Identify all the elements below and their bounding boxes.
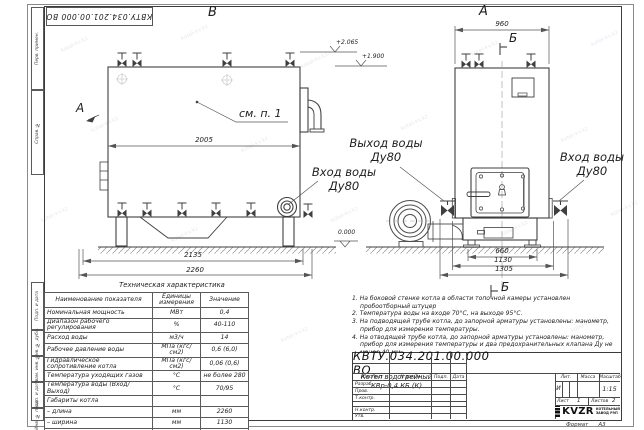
dim-2260: 2260: [165, 267, 225, 274]
spec-header-units: Единицы измерения: [153, 293, 201, 308]
col-header-podp: Подп.: [432, 375, 450, 380]
spec-row: Расход водым3/ч14: [45, 332, 249, 343]
spec-header-row: Наименование показателя Единицы измерени…: [45, 293, 249, 308]
dim-1305: 1305: [474, 266, 534, 273]
spec-header-name: Наименование показателя: [45, 293, 153, 308]
row-label-razrab: Разраб.: [355, 382, 373, 387]
view-label-a: А: [479, 5, 488, 18]
elevation-1900: +1.900: [362, 54, 384, 60]
row-label-nkontr: Н.контр.: [355, 408, 376, 413]
spec-units: м3/ч: [153, 332, 201, 343]
margin-label: Подп. и дата: [35, 291, 40, 321]
spec-value: 0,6 (6,0): [201, 343, 249, 357]
spec-header-value: Значение: [201, 293, 249, 308]
note-1: 1. На боковой стенке котла в области топ…: [352, 295, 620, 310]
spec-units: мм: [153, 418, 201, 429]
spec-units: мм: [153, 407, 201, 418]
spec-name: – ширина: [45, 418, 153, 429]
col-header-data: Дата: [451, 375, 466, 380]
spec-units: °С: [153, 371, 201, 382]
dim-1130: 1130: [473, 257, 533, 264]
note-3: 3. На подводящей трубе котла, до запорно…: [352, 318, 620, 333]
scale-value: 1:15: [599, 385, 620, 393]
dim-960: 960: [472, 21, 532, 28]
spec-value: 2260: [201, 407, 249, 418]
spec-value: не более 280: [201, 371, 249, 382]
elevation-0000: 0.000: [338, 230, 355, 236]
inlet-label-front-2: Ду80: [556, 166, 628, 178]
margin-box-perv-primen: Перв. примен.: [31, 7, 44, 90]
spec-name: Габариты котла: [45, 396, 153, 407]
format-note: ФорматА3: [566, 422, 616, 428]
mass-header: Масса: [577, 375, 599, 380]
spec-name: Диапазон рабочего регулирования: [45, 319, 153, 333]
col-header-n-dokum: N докум.: [391, 375, 431, 380]
spec-row: Номинальная мощностьМВт0,4: [45, 308, 249, 319]
logo-text: KVZR: [562, 406, 594, 417]
spec-row: Габариты котла: [45, 396, 249, 407]
margin-box-inv-podl: Инв. № подл.: [31, 408, 44, 421]
margin-label: Перв. примен.: [35, 32, 40, 65]
sheets-label: Листов: [591, 399, 608, 404]
spec-name: Гидравлическое сопротивление котла: [45, 357, 153, 371]
spec-row: Рабочее давление водыМПа (кгс/см2)0,6 (6…: [45, 343, 249, 357]
margin-label: Справ. №: [35, 122, 40, 144]
row-label-tkontr: Т.контр.: [355, 396, 375, 401]
spec-name: Расход воды: [45, 332, 153, 343]
top-doc-number-box: КВТУ.034.201.00.000 ВО: [46, 7, 153, 26]
spec-value: 0,4: [201, 308, 249, 319]
spec-name: Номинальная мощность: [45, 308, 153, 319]
logo-mark-icon: [555, 406, 560, 417]
drawing-sheet: kotel-kv.kz kotel-kv.kz kotel-kv.kz kote…: [0, 0, 644, 430]
dim-2005: 2005: [174, 137, 234, 144]
margin-label: Инв. № подл.: [35, 399, 40, 430]
spec-units: °С: [153, 382, 201, 396]
spec-value: 0,06 (0,6): [201, 357, 249, 371]
view-arrow-label-a: А: [76, 102, 84, 114]
outlet-label-1: Выход воды: [348, 138, 424, 150]
spec-value: 70/95: [201, 382, 249, 396]
dim-2135: 2135: [163, 252, 223, 259]
callout-see-note-1: см. п. 1: [239, 108, 282, 119]
sheets-value: 2: [612, 398, 616, 404]
spec-value: 40-110: [201, 319, 249, 333]
inlet-label-side-1: Вход воды: [310, 167, 378, 179]
logo-subtitle-line2: ЗАВОД РЭП: [596, 412, 620, 416]
row-label-utv: Утв.: [355, 414, 365, 419]
dim-660: 660: [472, 248, 532, 255]
row-label-prov: Пров.: [355, 389, 368, 394]
col-header-izm-list: Изм.Лист: [355, 375, 389, 380]
spec-value: 14: [201, 332, 249, 343]
spec-units: МПа (кгс/см2): [153, 343, 201, 357]
spec-row: Температура уходящих газов°Сне более 280: [45, 371, 249, 382]
spec-name: – длина: [45, 407, 153, 418]
spec-table: Наименование показателя Единицы измерени…: [44, 292, 249, 430]
spec-units: МПа (кгс/см2): [153, 357, 201, 371]
spec-units: МВт: [153, 308, 201, 319]
margin-box-vzam-inv: Взам. инв. №: [31, 356, 44, 382]
elevation-2065: +2.065: [336, 40, 358, 46]
spec-table-title: Техническая характеристика: [70, 281, 274, 289]
margin-box-podp-data-1: Подп. и дата: [31, 282, 44, 330]
logo-subtitle: КОТЕЛЬНЫЙ ЗАВОД РЭП: [596, 408, 620, 416]
top-doc-number: КВТУ.034.201.00.000 ВО: [46, 12, 152, 21]
scale-header: Масштаб: [599, 375, 620, 380]
lit-value: И: [555, 385, 562, 392]
spec-row: Гидравлическое сопротивление котлаМПа (к…: [45, 357, 249, 371]
inlet-label-side-2: Ду80: [310, 181, 378, 193]
title-block: КВТУ.034.201.00.000 ВО Изм.Лист N докум.…: [352, 352, 622, 421]
spec-row: – длинамм2260: [45, 407, 249, 418]
margin-box-inv-dubl: Инв. № дубл.: [31, 330, 44, 356]
format-value: А3: [598, 422, 605, 428]
spec-units: [153, 396, 201, 407]
spec-row: – ширинамм1130: [45, 418, 249, 429]
spec-units: %: [153, 319, 201, 333]
spec-row: Диапазон рабочего регулирования%40-110: [45, 319, 249, 333]
sheet-value: 1: [577, 398, 581, 404]
margin-box-sprav: Справ. №: [31, 90, 44, 175]
lit-header: Лит.: [555, 375, 577, 380]
spec-name: Температура воды (Вход/Выход): [45, 382, 153, 396]
section-label-b-bottom: Б: [501, 281, 509, 293]
spec-row: Температура воды (Вход/Выход)°С70/95: [45, 382, 249, 396]
spec-value: 1130: [201, 418, 249, 429]
view-label-b: В: [208, 6, 217, 19]
format-label: Формат: [566, 422, 588, 428]
outlet-label-2: Ду80: [348, 152, 424, 164]
spec-name: Рабочее давление воды: [45, 343, 153, 357]
company-logo: KVZR КОТЕЛЬНЫЙ ЗАВОД РЭП: [555, 405, 620, 418]
inlet-label-front-1: Вход воды: [556, 152, 628, 164]
spec-name: Температура уходящих газов: [45, 371, 153, 382]
spec-value: [201, 396, 249, 407]
section-label-b-top: Б: [509, 32, 517, 44]
sheet-label: Лист: [557, 399, 569, 404]
